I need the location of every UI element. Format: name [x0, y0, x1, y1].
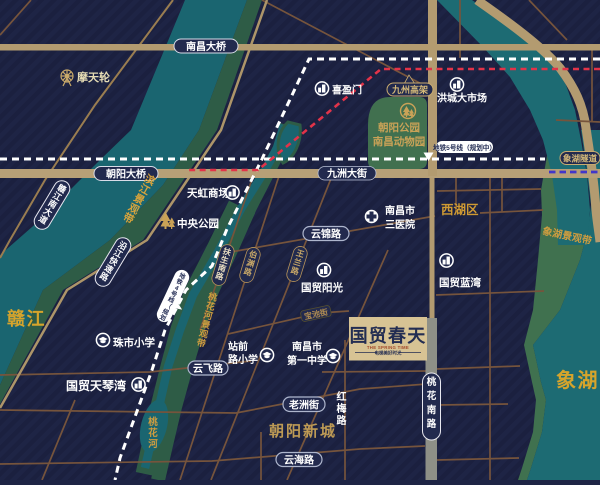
svg-text:九洲大街: 九洲大街	[326, 167, 367, 180]
svg-text:象湖隧道: 象湖隧道	[563, 154, 598, 164]
svg-text:三医院: 三医院	[385, 218, 415, 231]
svg-text:洪城大市场: 洪城大市场	[437, 92, 487, 105]
svg-text:南昌市: 南昌市	[385, 204, 415, 217]
svg-text:西湖区: 西湖区	[441, 202, 479, 217]
svg-text:南昌大桥: 南昌大桥	[186, 40, 227, 53]
svg-text:云飞路: 云飞路	[193, 362, 224, 375]
svg-text:九州高架: 九州高架	[391, 84, 428, 95]
svg-text:老洲街: 老洲街	[288, 399, 319, 412]
svg-text:喜盈门: 喜盈门	[332, 84, 362, 97]
svg-text:赣江: 赣江	[7, 308, 46, 329]
svg-text:朝阳大桥: 朝阳大桥	[106, 167, 147, 180]
svg-text:第一中学: 第一中学	[287, 354, 327, 367]
svg-text:国贸春天: 国贸春天	[350, 325, 427, 346]
svg-text:电梯美好时光: 电梯美好时光	[375, 350, 402, 357]
svg-text:象湖: 象湖	[556, 368, 599, 392]
svg-text:地铁5号线（规划中）: 地铁5号线（规划中）	[433, 143, 496, 152]
svg-text:云海路: 云海路	[284, 454, 315, 467]
svg-text:南昌市: 南昌市	[292, 340, 322, 353]
svg-text:桃花河: 桃花河	[148, 416, 158, 450]
svg-text:站前: 站前	[228, 340, 248, 353]
svg-text:天虹商场: 天虹商场	[187, 187, 229, 200]
svg-text:路小学: 路小学	[228, 353, 258, 366]
svg-text:朝阳公园: 朝阳公园	[378, 121, 420, 134]
svg-text:国贸蓝湾: 国贸蓝湾	[439, 276, 481, 289]
svg-text:THE SPRING TIME: THE SPRING TIME	[367, 345, 409, 350]
svg-text:中央公园: 中央公园	[177, 217, 219, 230]
svg-text:珠市小学: 珠市小学	[113, 336, 155, 349]
svg-text:摩天轮: 摩天轮	[77, 70, 110, 84]
svg-text:云锦路: 云锦路	[311, 228, 342, 241]
svg-text:国贸天琴湾: 国贸天琴湾	[66, 378, 126, 393]
svg-text:南昌动物园: 南昌动物园	[373, 135, 426, 148]
svg-text:红梅路: 红梅路	[337, 390, 348, 427]
svg-text:国贸阳光: 国贸阳光	[301, 281, 343, 294]
svg-text:朝阳新城: 朝阳新城	[269, 422, 337, 440]
